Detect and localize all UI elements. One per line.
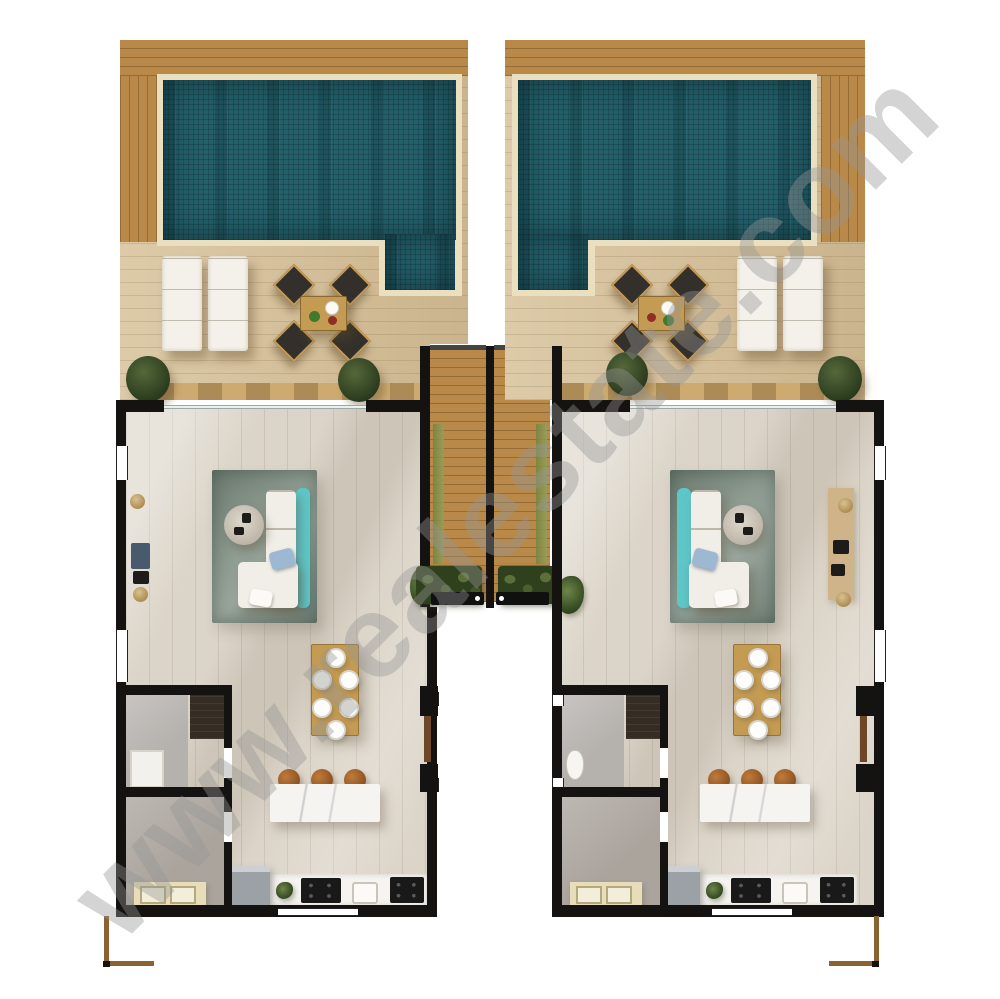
- floor-basket: [130, 494, 145, 509]
- coffee-table-decor: [234, 527, 244, 535]
- sun-lounger: [162, 256, 202, 351]
- kitchen-island: [700, 784, 810, 822]
- shower-tray: [130, 750, 164, 788]
- shrub: [818, 356, 862, 402]
- coffee-table: [723, 505, 763, 545]
- table-bowl: [647, 313, 656, 322]
- grass-strip: [433, 424, 444, 564]
- tile-walkway-right: [560, 383, 850, 400]
- sliding-glass-door: [164, 403, 366, 409]
- coffee-table-decor: [242, 513, 251, 523]
- floor-pouf: [133, 587, 148, 602]
- dining-plate: [748, 720, 768, 740]
- wall-bath-mid: [552, 787, 660, 797]
- marker-corner: [103, 961, 110, 967]
- sun-lounger: [737, 256, 777, 351]
- wardrobe: [420, 686, 438, 716]
- media-box: [133, 571, 149, 584]
- sink-basin: [576, 886, 602, 904]
- wardrobe: [420, 764, 438, 792]
- coffee-table-decor: [743, 527, 753, 535]
- dining-plate: [748, 648, 768, 668]
- window: [278, 908, 358, 916]
- floor-plan-canvas: www.realestate.com: [0, 0, 1000, 999]
- deck-wood-border-top-right: [505, 40, 865, 76]
- wall-void-side: [552, 607, 562, 913]
- dining-plate: [339, 670, 359, 690]
- door-handle: [499, 596, 504, 601]
- door-opening: [660, 812, 668, 842]
- wardrobe: [856, 764, 874, 792]
- sliding-glass-door: [630, 403, 836, 409]
- pool-right-extension: [518, 234, 588, 290]
- door-opening: [660, 748, 668, 778]
- marker-corner: [872, 961, 879, 967]
- wall-top-seg: [560, 400, 630, 412]
- dining-plate: [734, 670, 754, 690]
- wall-bath-mid: [116, 787, 224, 797]
- party-wall: [486, 346, 494, 608]
- marker-line: [110, 961, 154, 966]
- kitchen-sink: [352, 882, 378, 904]
- dining-plate: [312, 698, 332, 718]
- gate-line: [430, 344, 486, 350]
- tile-walkway-left: [150, 383, 440, 400]
- dining-plate: [312, 670, 332, 690]
- fridge: [228, 866, 270, 906]
- dining-plate: [734, 698, 754, 718]
- door-leaf: [860, 716, 867, 762]
- door-opening: [224, 812, 232, 842]
- sink-basin: [606, 886, 632, 904]
- closet: [190, 695, 224, 739]
- wall-bath-top: [552, 685, 668, 695]
- marker-line: [874, 916, 879, 962]
- dining-plate: [326, 648, 346, 668]
- wall-bath-right: [660, 695, 668, 907]
- pool-left: [163, 80, 456, 240]
- toilet: [566, 750, 584, 780]
- sun-lounger: [783, 256, 823, 351]
- dining-plate: [761, 670, 781, 690]
- floor-basket: [838, 498, 853, 513]
- door-leaf: [424, 716, 431, 762]
- wall-court-side: [552, 346, 562, 607]
- sofa-throw: [296, 488, 310, 608]
- floor-pouf: [836, 592, 851, 607]
- table-plant: [663, 315, 674, 326]
- table-plate: [661, 301, 675, 315]
- door-opening: [224, 748, 232, 778]
- dining-plate: [326, 720, 346, 740]
- window: [116, 630, 128, 682]
- wall-bath-right: [224, 695, 232, 907]
- cooktop: [731, 878, 771, 903]
- deck-wood-border-side-right: [821, 76, 865, 242]
- cooktop: [301, 878, 341, 903]
- window: [116, 446, 128, 480]
- sink-basin: [170, 886, 196, 904]
- dining-plate: [761, 698, 781, 718]
- shrub: [606, 352, 648, 396]
- dining-plate: [339, 698, 359, 718]
- outdoor-dining-table: [300, 296, 347, 331]
- pool-right: [518, 80, 811, 240]
- shrub: [126, 356, 170, 402]
- wardrobe: [856, 686, 874, 716]
- kitchen-appliance: [820, 877, 854, 903]
- kitchen-sink: [782, 882, 808, 904]
- coffee-table-decor: [735, 513, 744, 523]
- grass-strip: [536, 424, 547, 564]
- tv-unit: [131, 543, 150, 569]
- window: [874, 630, 886, 682]
- marker-line: [104, 916, 109, 962]
- table-plate: [325, 301, 339, 315]
- window: [874, 446, 886, 480]
- media-box: [831, 564, 845, 576]
- wall-top-seg: [836, 400, 884, 412]
- shrub: [338, 358, 380, 402]
- window: [712, 908, 792, 916]
- wall-bottom: [116, 905, 437, 917]
- sun-lounger: [208, 256, 248, 351]
- table-plant: [309, 311, 320, 322]
- kitchen-island: [270, 784, 380, 822]
- door-handle: [475, 596, 480, 601]
- table-bowl: [328, 316, 337, 325]
- wall-top-seg: [116, 400, 164, 412]
- media-box: [833, 540, 849, 554]
- deck-wood-border-top-left: [120, 40, 468, 76]
- sink-basin: [140, 886, 166, 904]
- wall-bath-top: [116, 685, 232, 695]
- pool-left-extension: [385, 234, 455, 290]
- closet: [626, 695, 660, 739]
- coffee-table: [224, 505, 264, 545]
- outdoor-dining-table: [638, 296, 685, 331]
- kitchen-appliance: [390, 877, 424, 903]
- marker-line: [829, 961, 873, 966]
